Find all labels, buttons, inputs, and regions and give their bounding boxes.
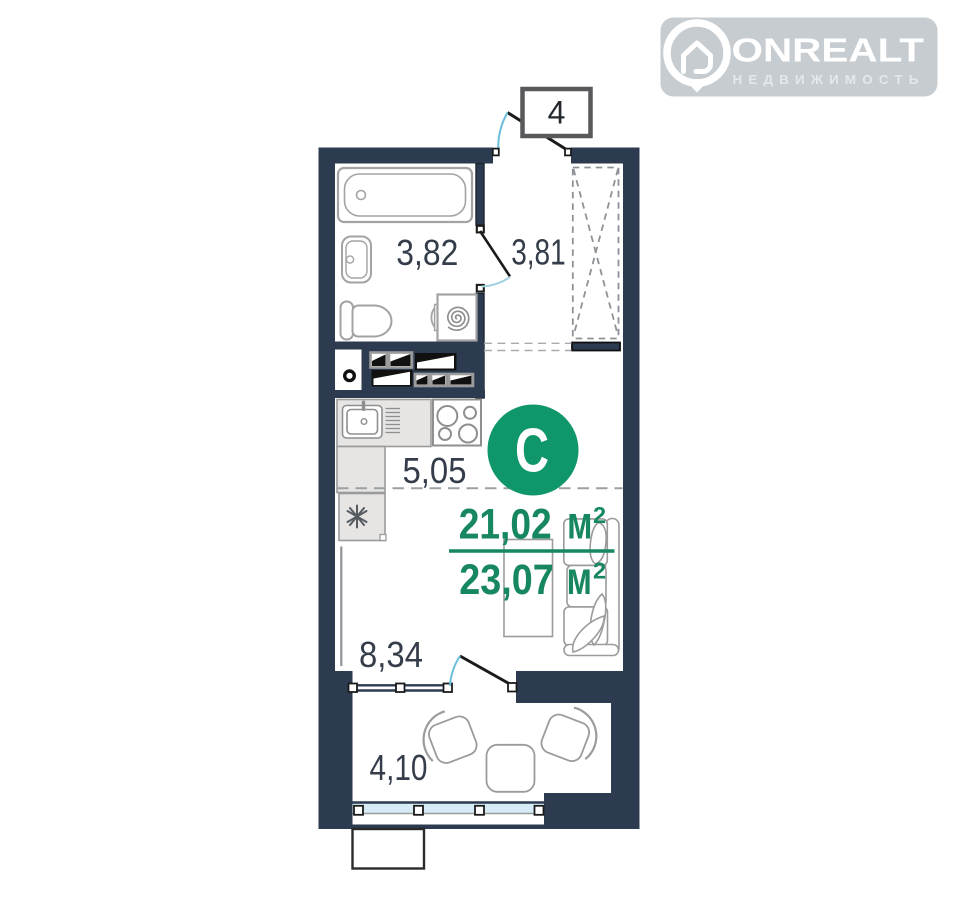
svg-text:ONREALT: ONREALT (732, 32, 925, 69)
svg-text:23,07: 23,07 (459, 556, 553, 604)
svg-text:м: м (567, 552, 593, 604)
svg-text:4: 4 (548, 95, 566, 131)
svg-text:4,10: 4,10 (370, 747, 428, 788)
svg-text:8,34: 8,34 (359, 634, 423, 675)
svg-text:2: 2 (593, 558, 606, 584)
svg-text:5,05: 5,05 (403, 450, 467, 491)
svg-text:2: 2 (593, 502, 606, 528)
svg-text:3,82: 3,82 (396, 232, 458, 273)
svg-text:м: м (567, 497, 593, 549)
svg-text:21,02: 21,02 (459, 501, 552, 549)
svg-text:НЕДВИЖИМОСТЬ: НЕДВИЖИМОСТЬ (733, 72, 925, 87)
svg-text:С: С (515, 417, 549, 486)
svg-text:3,81: 3,81 (511, 232, 566, 273)
